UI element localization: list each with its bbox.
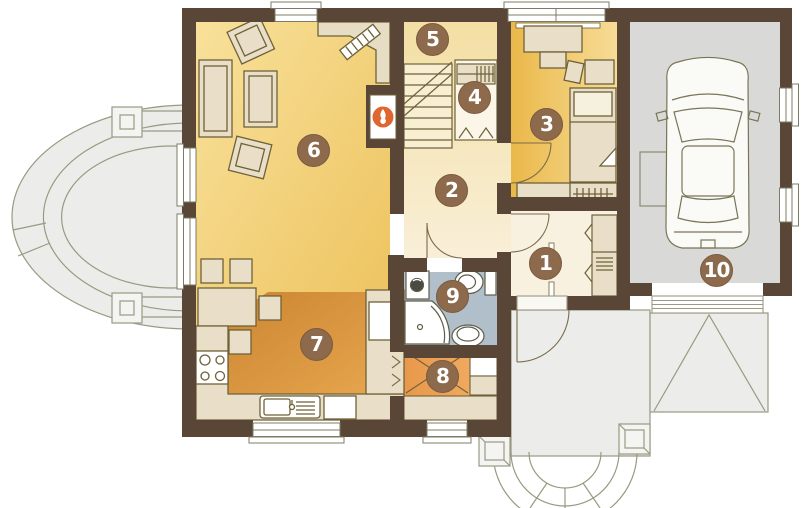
stairs-icon: [404, 62, 452, 148]
room-badge-3: 3: [530, 108, 563, 141]
room-badge-6: 6: [297, 134, 330, 167]
room-badge-8: 8: [426, 360, 459, 393]
window: [780, 84, 799, 126]
coffee-table-icon: [244, 71, 277, 127]
fireplace-icon: [370, 95, 396, 139]
garage-door: [652, 296, 763, 313]
window: [271, 2, 321, 22]
window: [780, 184, 799, 226]
room-badge-9: 9: [436, 280, 469, 313]
window: [177, 214, 196, 289]
terrace-left: [12, 105, 190, 329]
entrance-steps: [493, 452, 637, 508]
sofa-icon: [199, 60, 232, 137]
dining-table: [198, 288, 256, 326]
nightstand: [585, 60, 614, 84]
front-door-threshold: [517, 296, 567, 310]
room-badge-5: 5: [416, 23, 449, 56]
window: [423, 423, 471, 443]
dining-chair: [230, 259, 252, 283]
dishwasher: [324, 396, 356, 419]
dining-chair: [229, 330, 251, 354]
desk-chair: [540, 52, 566, 68]
washing-machine-icon: [406, 271, 429, 299]
dining-chair: [201, 259, 223, 283]
room-badge-1: 1: [529, 247, 562, 280]
room-badge-10: 10: [700, 254, 733, 287]
floor-plan-drawing: [0, 0, 803, 508]
desk: [524, 26, 582, 52]
dining-chair: [259, 296, 281, 320]
window: [249, 423, 344, 443]
bed-icon: [570, 88, 616, 182]
window: [177, 144, 196, 206]
car-icon: [656, 58, 760, 249]
stove-icon: [196, 351, 228, 384]
room-badge-4: 4: [458, 81, 491, 114]
window: [504, 2, 609, 22]
driveway: [650, 313, 768, 412]
room-badge-2: 2: [435, 174, 468, 207]
sink-icon: [260, 396, 320, 418]
room-badge-7: 7: [300, 328, 333, 361]
floor-plan: 1 2 3 4 5 6 7 8 9 10: [0, 0, 803, 508]
